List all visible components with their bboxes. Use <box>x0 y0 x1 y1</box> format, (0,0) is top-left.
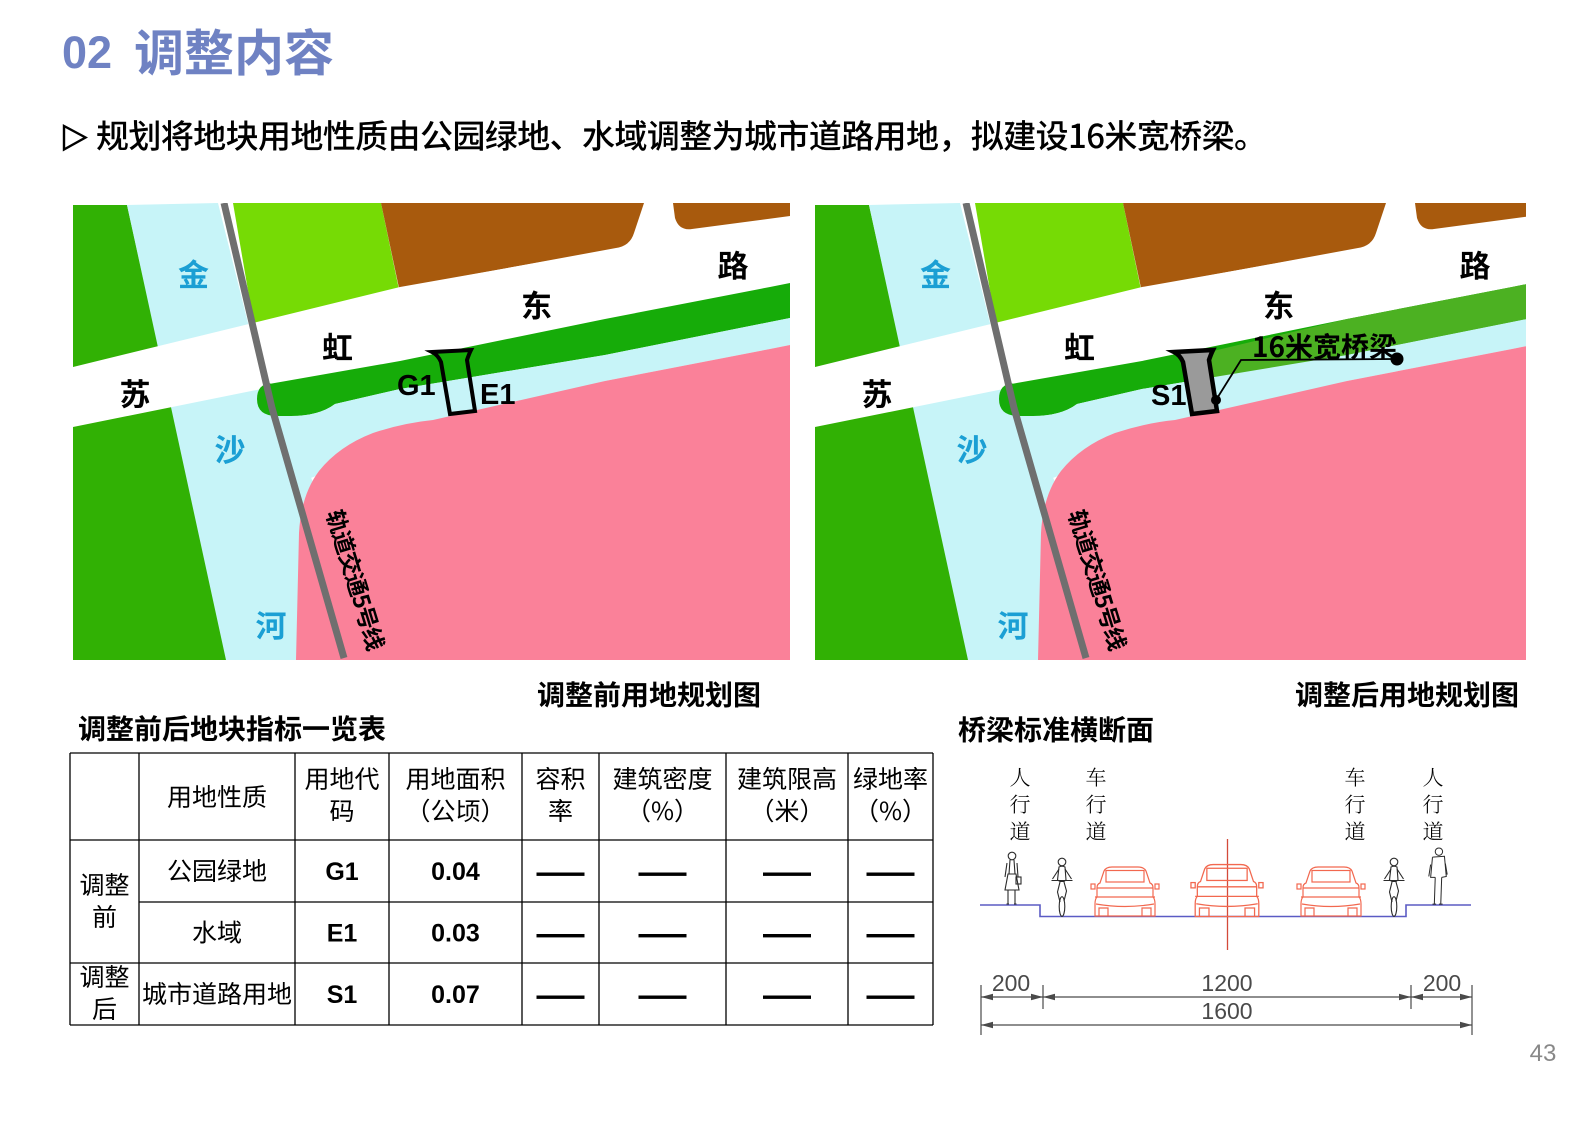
svg-text:G1: G1 <box>397 370 436 402</box>
svg-text:200: 200 <box>992 970 1030 996</box>
svg-text:S1: S1 <box>1151 380 1186 412</box>
svg-text:0.07: 0.07 <box>431 981 480 1009</box>
svg-text:0.04: 0.04 <box>431 858 480 886</box>
svg-text:43: 43 <box>1530 1040 1557 1067</box>
svg-text:0.03: 0.03 <box>431 920 480 948</box>
svg-text:E1: E1 <box>480 379 515 411</box>
svg-text:E1: E1 <box>327 920 358 948</box>
svg-text:02: 02 <box>62 27 112 78</box>
svg-text:200: 200 <box>1423 970 1461 996</box>
svg-text:G1: G1 <box>325 858 358 886</box>
svg-text:1200: 1200 <box>1201 970 1252 996</box>
svg-text:1600: 1600 <box>1201 998 1252 1024</box>
svg-text:S1: S1 <box>327 981 358 1009</box>
